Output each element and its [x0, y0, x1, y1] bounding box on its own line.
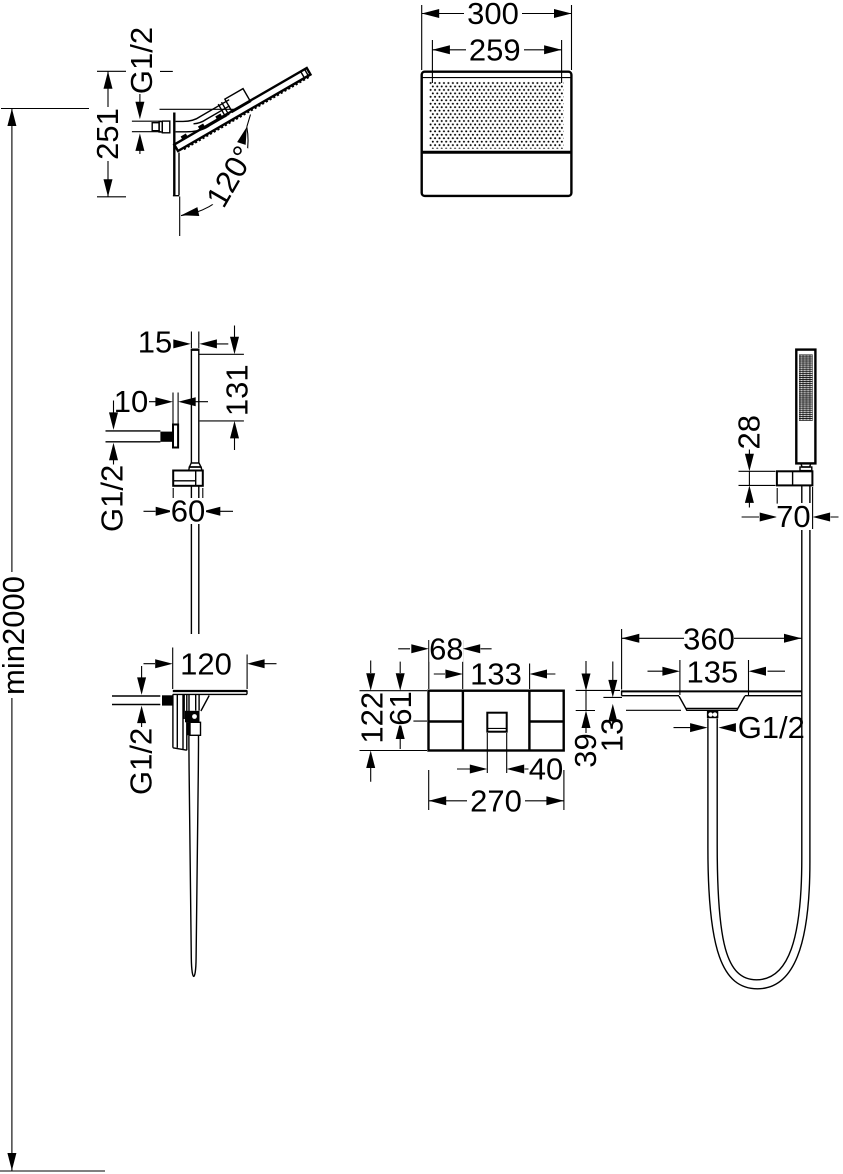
svg-text:15: 15: [138, 325, 172, 360]
svg-text:10: 10: [114, 384, 148, 419]
svg-text:135: 135: [687, 654, 739, 689]
svg-text:13: 13: [595, 718, 630, 752]
svg-text:131: 131: [220, 364, 255, 416]
svg-text:360: 360: [683, 622, 735, 657]
svg-text:300: 300: [467, 0, 519, 31]
svg-text:61: 61: [383, 691, 418, 725]
svg-text:133: 133: [470, 657, 522, 692]
svg-text:60: 60: [171, 494, 205, 529]
svg-text:G1/2: G1/2: [738, 710, 805, 745]
svg-text:40: 40: [529, 752, 563, 787]
svg-text:G1/2: G1/2: [124, 27, 159, 94]
svg-text:259: 259: [469, 33, 521, 68]
svg-text:120: 120: [180, 647, 232, 682]
svg-text:270: 270: [470, 783, 522, 818]
svg-text:min2000: min2000: [0, 576, 31, 695]
svg-text:G1/2: G1/2: [95, 465, 130, 532]
svg-text:68: 68: [429, 631, 463, 666]
svg-text:G1/2: G1/2: [124, 728, 159, 795]
svg-text:251: 251: [90, 108, 125, 160]
svg-text:28: 28: [732, 415, 767, 449]
svg-text:70: 70: [776, 499, 810, 534]
